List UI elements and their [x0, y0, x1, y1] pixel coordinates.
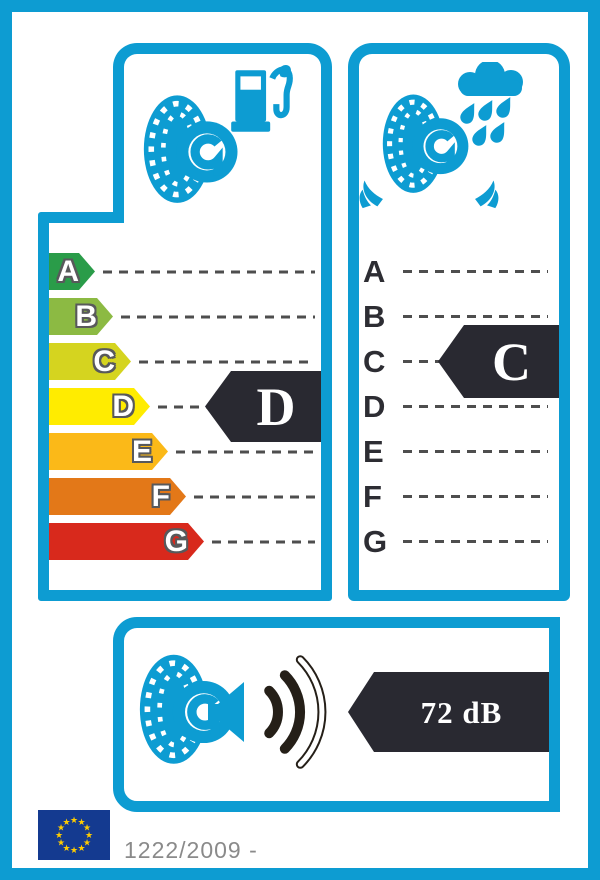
dashed-line	[403, 270, 548, 273]
fuel-grade-arrow: D	[49, 388, 150, 425]
fuel-grade-arrow: A	[49, 253, 95, 290]
rain-drops	[458, 94, 516, 148]
fuel-grade-arrow: B	[49, 298, 113, 335]
wet-grade-letter: E	[363, 436, 403, 467]
dashed-line	[403, 495, 548, 498]
fuel-rating-letter: D	[257, 380, 296, 434]
fuel-grade-letter: F	[152, 482, 170, 512]
wet-scale-row-g: G	[363, 523, 550, 560]
wet-grade-letter: C	[363, 346, 403, 377]
fuel-scale-row-g: G	[49, 523, 317, 560]
dashed-line	[194, 495, 315, 498]
wet-scale-rows: A B C D E F G	[363, 253, 550, 568]
fuel-scale-row-a: A	[49, 253, 317, 290]
sound-wave-1	[269, 691, 278, 733]
dashed-line	[139, 360, 315, 363]
dashed-line	[403, 540, 548, 543]
fuel-grade-letter: C	[93, 347, 115, 377]
fuel-grade-arrow: C	[49, 343, 131, 380]
wet-grade-letter: A	[363, 256, 403, 287]
fuel-grade-letter: A	[57, 257, 79, 287]
wet-scale-row-e: E	[363, 433, 550, 470]
noise-rating-arrow: 72 dB	[348, 672, 549, 752]
fuel-grade-arrow: G	[49, 523, 204, 560]
sound-wave-2	[285, 675, 300, 749]
dashed-line	[212, 540, 315, 543]
fuel-grade-letter: B	[75, 302, 97, 332]
wet-grade-letter: D	[363, 391, 403, 422]
rain-cloud-icon	[454, 62, 549, 154]
fuel-grade-arrow: E	[49, 433, 168, 470]
wet-scale-row-f: F	[363, 478, 550, 515]
fuel-pump-icon	[231, 62, 295, 140]
dashed-line	[176, 450, 315, 453]
fuel-grade-arrow: F	[49, 478, 186, 515]
tire-noise-waves-icon	[138, 650, 348, 778]
svg-text:★: ★	[62, 818, 70, 828]
dashed-line	[103, 270, 315, 273]
splash-left	[360, 181, 383, 209]
regulation-text: 1222/2009 -	[124, 837, 258, 864]
wet-scale-row-a: A	[363, 253, 550, 290]
svg-text:★: ★	[70, 846, 78, 856]
fuel-grade-letter: G	[165, 527, 188, 557]
svg-text:★: ★	[77, 844, 85, 854]
fuel-efficiency-panel	[113, 43, 332, 223]
dashed-line	[403, 450, 548, 453]
dashed-line	[403, 315, 548, 318]
eu-tyre-label: A B C D	[0, 0, 600, 880]
fuel-scale-row-f: F	[49, 478, 317, 515]
dashed-line	[121, 315, 315, 318]
wet-grade-letter: B	[363, 301, 403, 332]
wet-grip-panel: A B C D E F G	[348, 43, 570, 601]
wet-grade-letter: F	[363, 481, 403, 512]
noise-value: 72 dB	[421, 697, 503, 728]
dashed-line	[403, 405, 548, 408]
splash-right	[475, 181, 498, 209]
wet-grip-rating-letter: C	[492, 335, 531, 389]
tire-icon	[142, 88, 244, 214]
fuel-grade-letter: D	[112, 392, 134, 422]
eu-flag-icon: ★★★★★★★★★★★★	[38, 810, 110, 860]
fuel-scale-row-b: B	[49, 298, 317, 335]
fuel-grade-letter: E	[132, 437, 152, 467]
wet-grade-letter: G	[363, 526, 403, 557]
